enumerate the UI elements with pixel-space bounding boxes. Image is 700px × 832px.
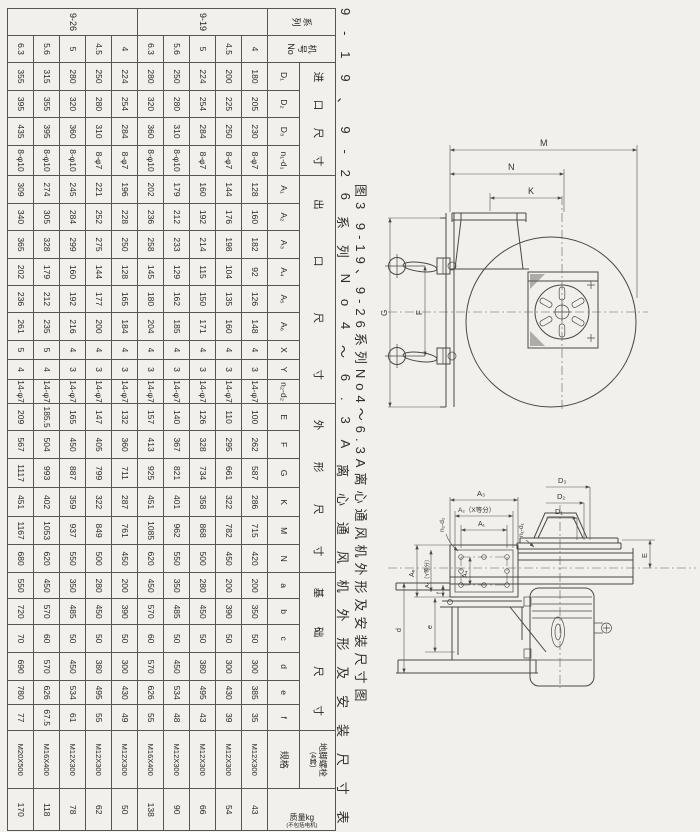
dim-label-d: d <box>396 628 403 632</box>
header-anchor-bolt: 地脚螺栓(4套) <box>300 731 336 789</box>
data-cell: 202 <box>8 259 34 286</box>
dim-label-N: N <box>508 162 515 172</box>
data-cell: 274 <box>34 176 60 204</box>
data-cell: 55 <box>138 705 164 731</box>
table-caption-char: 尺 <box>334 753 353 766</box>
data-cell: 275 <box>86 231 112 259</box>
data-cell: 148 <box>242 313 268 341</box>
header-col: A₅ <box>268 286 300 313</box>
data-cell: 3 <box>138 360 164 380</box>
data-cell: 49 <box>112 705 138 731</box>
model-no-cell: 4.5 <box>216 36 242 63</box>
data-cell: 570 <box>34 653 60 681</box>
data-cell: 162 <box>164 286 190 313</box>
data-cell: 413 <box>138 431 164 459</box>
data-cell: 177 <box>86 286 112 313</box>
table-caption-char: ～ <box>334 345 353 358</box>
figure-caption: 图3 9-19、9-26系列No4～6.3A离心通风机外形及安装尺寸图 <box>352 184 371 706</box>
data-cell: 295 <box>216 431 242 459</box>
data-cell: 236 <box>138 204 164 231</box>
data-cell: 4 <box>138 341 164 360</box>
data-cell: 212 <box>34 286 60 313</box>
header-col: c <box>268 625 300 653</box>
data-cell: 50 <box>86 625 112 653</box>
data-cell: 126 <box>190 404 216 431</box>
spec-table: 系列机号No进口尺寸出口尺寸外形尺寸基础尺寸地脚螺栓(4套)质量kg(不包括电机… <box>7 8 336 831</box>
dim-label-D1: D₁ <box>555 507 563 516</box>
data-cell: 868 <box>190 517 216 545</box>
table-row: 6.32803203608-φ102022362581451802044314-… <box>138 9 164 831</box>
data-cell: 77 <box>8 705 34 731</box>
motor <box>524 588 612 686</box>
table-caption-char: 9 <box>334 126 353 133</box>
data-cell: 150 <box>190 286 216 313</box>
data-cell: M12X300 <box>164 731 190 789</box>
table-caption-char: . <box>334 397 353 401</box>
data-cell: 180 <box>138 286 164 313</box>
data-cell: 1085 <box>138 517 164 545</box>
data-cell: 14-φ7 <box>86 380 112 404</box>
data-cell: 165 <box>112 286 138 313</box>
data-cell: 450 <box>138 573 164 599</box>
table-caption-char: A <box>334 440 353 449</box>
data-cell: M16X400 <box>138 731 164 789</box>
data-cell: 799 <box>86 459 112 488</box>
header-col: A₁ <box>268 176 300 204</box>
data-cell: 118 <box>34 789 60 831</box>
data-cell: 390 <box>112 599 138 625</box>
table-caption-char: 表 <box>334 811 353 824</box>
data-cell: 587 <box>242 459 268 488</box>
data-cell: 360 <box>138 118 164 146</box>
table-caption-char: 6 <box>334 193 353 200</box>
header-col: Y <box>268 360 300 380</box>
data-cell: 160 <box>60 259 86 286</box>
data-cell: 322 <box>216 488 242 517</box>
data-cell: 450 <box>34 573 60 599</box>
data-cell: 993 <box>34 459 60 488</box>
data-cell: 3 <box>60 360 86 380</box>
data-cell: 3 <box>242 360 268 380</box>
data-cell: M12X300 <box>190 731 216 789</box>
data-cell: 5 <box>8 341 34 360</box>
dim-label-K: K <box>528 186 534 196</box>
data-cell: 534 <box>164 681 190 705</box>
data-cell: 430 <box>216 681 242 705</box>
data-cell: 66 <box>190 789 216 831</box>
table-caption-char: N <box>334 274 353 283</box>
table-caption-char: 及 <box>334 666 353 679</box>
table-row: 9-1941802052308-φ7128160182921261484314-… <box>242 9 268 831</box>
data-cell: 310 <box>164 118 190 146</box>
header-col: n₁-d₁ <box>268 146 300 176</box>
data-cell: 4 <box>216 341 242 360</box>
header-group-2: 外形尺寸 <box>300 404 336 573</box>
data-cell: 300 <box>112 653 138 681</box>
header-col: G <box>268 459 300 488</box>
model-no-cell: 5.6 <box>164 36 190 63</box>
data-cell: 8-φ10 <box>34 146 60 176</box>
data-cell: 567 <box>8 431 34 459</box>
data-cell: 135 <box>216 286 242 313</box>
dim-label-f: f <box>436 592 443 594</box>
header-col: n₂-d₂ <box>268 380 300 404</box>
data-cell: 8-φ7 <box>216 146 242 176</box>
data-cell: 451 <box>8 488 34 517</box>
data-cell: 250 <box>86 63 112 91</box>
data-cell: 216 <box>60 313 86 341</box>
header-col: d <box>268 653 300 681</box>
data-cell: 821 <box>164 459 190 488</box>
header-col: b <box>268 599 300 625</box>
data-cell: 1117 <box>8 459 34 488</box>
data-cell: 280 <box>86 573 112 599</box>
header-col: M <box>268 517 300 545</box>
data-cell: 184 <box>112 313 138 341</box>
data-cell: 182 <box>242 231 268 259</box>
data-cell: 430 <box>112 681 138 705</box>
data-cell: 8-φ10 <box>138 146 164 176</box>
data-cell: 54 <box>216 789 242 831</box>
model-no-cell: 6.3 <box>138 36 164 63</box>
table-caption: 9-19、9-26系列No4～6.3A离心通风机外形及安装尺寸表 <box>334 8 353 824</box>
table-caption-char: 9 <box>334 8 353 15</box>
header-col: A₃ <box>268 231 300 259</box>
table-caption-char: 通 <box>334 522 353 535</box>
data-cell: 380 <box>86 653 112 681</box>
inlet-bell <box>517 513 621 553</box>
data-cell: 4 <box>190 341 216 360</box>
data-cell: 104 <box>216 259 242 286</box>
data-cell: 3 <box>190 360 216 380</box>
data-cell: 680 <box>8 545 34 573</box>
data-cell: 70 <box>8 625 34 653</box>
data-cell: 236 <box>8 286 34 313</box>
table-row: 4.52502803108-φ72212522751441772004314-φ… <box>86 9 112 831</box>
table-caption-char: 2 <box>334 170 353 177</box>
data-cell: 160 <box>242 204 268 231</box>
data-cell: 147 <box>86 404 112 431</box>
table-caption-char: 9 <box>334 74 353 81</box>
data-cell: 132 <box>112 404 138 431</box>
data-cell: 245 <box>60 176 86 204</box>
data-cell: 962 <box>164 517 190 545</box>
data-cell: 450 <box>216 545 242 573</box>
data-cell: 309 <box>8 176 34 204</box>
data-cell: 192 <box>60 286 86 313</box>
data-cell: M12X300 <box>60 731 86 789</box>
table-caption-char: 、 <box>334 97 353 110</box>
data-cell: 4 <box>34 360 60 380</box>
dim-label-G: G <box>380 310 389 316</box>
data-cell: 233 <box>164 231 190 259</box>
data-cell: 212 <box>164 204 190 231</box>
data-cell: 395 <box>8 91 34 118</box>
data-cell: 4 <box>164 341 190 360</box>
table-caption-char: 外 <box>334 608 353 621</box>
data-cell: 62 <box>86 789 112 831</box>
data-cell: 8-φ7 <box>112 146 138 176</box>
data-cell: 359 <box>60 488 86 517</box>
data-cell: 4 <box>60 341 86 360</box>
data-cell: 214 <box>190 231 216 259</box>
header-col: X <box>268 341 300 360</box>
model-no-cell: 4 <box>112 36 138 63</box>
data-cell: 299 <box>60 231 86 259</box>
data-cell: 67.5 <box>34 705 60 731</box>
table-caption-char: - <box>334 31 353 35</box>
data-cell: 570 <box>34 599 60 625</box>
data-cell: 230 <box>242 118 268 146</box>
data-cell: 202 <box>138 176 164 204</box>
data-cell: 78 <box>60 789 86 831</box>
dim-label-M: M <box>540 138 548 148</box>
table-caption-char: 心 <box>334 493 353 506</box>
data-cell: M12X300 <box>216 731 242 789</box>
data-cell: 8-φ10 <box>8 146 34 176</box>
data-cell: 258 <box>138 231 164 259</box>
data-cell: 350 <box>164 573 190 599</box>
data-cell: 401 <box>164 488 190 517</box>
dim-label-A3: A₃ <box>477 489 485 498</box>
data-cell: 390 <box>216 599 242 625</box>
fan-front-view-drawing: M N K G F <box>378 105 700 420</box>
data-cell: 3 <box>86 360 112 380</box>
fan-side-view-drawing: A₃ A₂（X等分） A₁ n₂-d₂ A₆ A₅（Y等分） A₄ f <box>378 435 700 693</box>
data-cell: 4 <box>8 360 34 380</box>
data-cell: 451 <box>138 488 164 517</box>
table-caption-char: 装 <box>334 724 353 737</box>
data-cell: 280 <box>164 91 190 118</box>
data-cell: 14-φ7 <box>190 380 216 404</box>
data-cell: 43 <box>242 789 268 831</box>
data-cell: 500 <box>190 545 216 573</box>
data-cell: 780 <box>8 681 34 705</box>
data-cell: 420 <box>242 545 268 573</box>
header-col: D₁ <box>268 63 300 91</box>
header-group-1: 出口尺寸 <box>300 176 336 404</box>
data-cell: 320 <box>138 91 164 118</box>
data-cell: 14-φ7 <box>164 380 190 404</box>
data-cell: 200 <box>112 573 138 599</box>
table-row: 52242542848-φ71601922141151501714314-φ71… <box>190 9 216 831</box>
data-cell: 937 <box>60 517 86 545</box>
table-caption-char: - <box>334 149 353 153</box>
header-col: a <box>268 573 300 599</box>
data-cell: 221 <box>86 176 112 204</box>
data-cell: 402 <box>34 488 60 517</box>
data-cell: 205 <box>242 91 268 118</box>
data-cell: 48 <box>164 705 190 731</box>
table-caption-char: 系 <box>334 216 353 229</box>
header-series: 系列 <box>268 9 336 36</box>
header-col: A₆ <box>268 313 300 341</box>
series-cell: 9-19 <box>138 9 268 36</box>
data-cell: 350 <box>60 573 86 599</box>
header-col: N <box>268 545 300 573</box>
data-cell: 140 <box>164 404 190 431</box>
data-cell: 4 <box>86 341 112 360</box>
data-cell: 50 <box>242 625 268 653</box>
data-cell: 200 <box>86 313 112 341</box>
header-model-no: 机号No <box>268 36 336 63</box>
data-cell: 128 <box>242 176 268 204</box>
data-cell: 925 <box>138 459 164 488</box>
data-cell: 715 <box>242 517 268 545</box>
table-caption-char: 3 <box>334 416 353 423</box>
model-no-cell: 6.3 <box>8 36 34 63</box>
data-cell: 198 <box>216 231 242 259</box>
data-cell: 185.5 <box>34 404 60 431</box>
data-cell: 129 <box>164 259 190 286</box>
data-cell: 138 <box>138 789 164 831</box>
data-cell: 60 <box>138 625 164 653</box>
header-col: K <box>268 488 300 517</box>
data-cell: M12X300 <box>112 731 138 789</box>
model-no-cell: 5.6 <box>34 36 60 63</box>
data-cell: 360 <box>60 118 86 146</box>
header-group-3: 基础尺寸 <box>300 573 336 731</box>
data-cell: 204 <box>138 313 164 341</box>
data-cell: 495 <box>190 681 216 705</box>
dim-label-n2d2: n₂-d₂ <box>439 517 446 532</box>
data-cell: 504 <box>34 431 60 459</box>
series-cell: 9-26 <box>8 9 138 36</box>
data-cell: 450 <box>164 653 190 681</box>
table-row: 4.52002252508-φ71441761981041351604314-φ… <box>216 9 242 831</box>
data-cell: 179 <box>164 176 190 204</box>
data-cell: 200 <box>242 573 268 599</box>
data-cell: 90 <box>164 789 190 831</box>
data-cell: 92 <box>242 259 268 286</box>
data-cell: 350 <box>242 599 268 625</box>
table-caption-char: 安 <box>334 695 353 708</box>
data-cell: 250 <box>112 231 138 259</box>
header-col: F <box>268 431 300 459</box>
data-cell: 300 <box>216 653 242 681</box>
data-cell: 14-φ7 <box>138 380 164 404</box>
data-cell: 782 <box>216 517 242 545</box>
data-cell: 485 <box>60 599 86 625</box>
data-cell: 185 <box>164 313 190 341</box>
header-col: f <box>268 705 300 731</box>
table-caption-char: 1 <box>334 51 353 58</box>
data-cell: 200 <box>216 573 242 599</box>
data-cell: 261 <box>8 313 34 341</box>
data-cell: 310 <box>86 118 112 146</box>
data-cell: 196 <box>112 176 138 204</box>
data-cell: 280 <box>138 63 164 91</box>
data-cell: 328 <box>190 431 216 459</box>
data-cell: 115 <box>190 259 216 286</box>
data-cell: 570 <box>138 599 164 625</box>
dim-label-D3: D₃ <box>558 476 566 485</box>
data-cell: 225 <box>216 91 242 118</box>
data-cell: M16X400 <box>34 731 60 789</box>
data-cell: 14-φ7 <box>60 380 86 404</box>
dim-label-e: e <box>427 625 434 629</box>
data-cell: 224 <box>112 63 138 91</box>
data-cell: 252 <box>86 204 112 231</box>
table-caption-char: 列 <box>334 245 353 258</box>
data-cell: 690 <box>8 653 34 681</box>
data-cell: 284 <box>112 118 138 146</box>
table-caption-char: 风 <box>334 551 353 564</box>
data-cell: 1167 <box>8 517 34 545</box>
header-col: A₂ <box>268 204 300 231</box>
data-cell: 50 <box>60 625 86 653</box>
model-no-cell: 4 <box>242 36 268 63</box>
data-cell: 620 <box>34 545 60 573</box>
damper-bracket-bottom <box>385 344 456 368</box>
data-cell: 315 <box>34 63 60 91</box>
data-cell: 3 <box>216 360 242 380</box>
dim-label-A6: A₆ <box>409 569 416 577</box>
data-cell: 176 <box>216 204 242 231</box>
data-cell: 280 <box>190 573 216 599</box>
data-cell: 550 <box>8 573 34 599</box>
dim-label-n1d1: n₁-d₁ <box>518 522 525 537</box>
data-cell: 14-φ7 <box>216 380 242 404</box>
data-cell: 450 <box>60 653 86 681</box>
data-cell: 160 <box>190 176 216 204</box>
header-col: D₂ <box>268 91 300 118</box>
data-cell: 157 <box>138 404 164 431</box>
table-caption-char: 离 <box>334 464 353 477</box>
header-bolt-spec: 规格 <box>268 731 300 789</box>
data-cell: 50 <box>216 625 242 653</box>
data-cell: 1053 <box>34 517 60 545</box>
data-cell: 4 <box>112 341 138 360</box>
data-cell: 254 <box>190 91 216 118</box>
data-cell: 287 <box>112 488 138 517</box>
header-col: E <box>268 404 300 431</box>
data-cell: 192 <box>190 204 216 231</box>
dim-label-F: F <box>415 310 424 315</box>
data-cell: 661 <box>216 459 242 488</box>
data-cell: 254 <box>112 91 138 118</box>
data-cell: 450 <box>86 599 112 625</box>
data-cell: 380 <box>190 653 216 681</box>
data-cell: 144 <box>86 259 112 286</box>
data-cell: 209 <box>8 404 34 431</box>
data-cell: 626 <box>138 681 164 705</box>
data-cell: 300 <box>242 653 268 681</box>
data-cell: 500 <box>86 545 112 573</box>
data-cell: 50 <box>112 625 138 653</box>
data-cell: 284 <box>190 118 216 146</box>
data-cell: 14-φ7 <box>8 380 34 404</box>
data-cell: 8-φ7 <box>242 146 268 176</box>
data-cell: M12X300 <box>242 731 268 789</box>
data-cell: 228 <box>112 204 138 231</box>
data-cell: 550 <box>164 545 190 573</box>
data-cell: 322 <box>86 488 112 517</box>
data-cell: 50 <box>164 625 190 653</box>
table-row: 9-2642242542848-φ71962282501281651844314… <box>112 9 138 831</box>
data-cell: 305 <box>34 204 60 231</box>
data-cell: 5 <box>34 341 60 360</box>
header-col: A₄ <box>268 259 300 286</box>
data-cell: 250 <box>164 63 190 91</box>
data-cell: 284 <box>60 204 86 231</box>
header-group-0: 进口尺寸 <box>300 63 336 176</box>
data-cell: 358 <box>190 488 216 517</box>
data-cell: 180 <box>242 63 268 91</box>
table-caption-char: 6 <box>334 374 353 381</box>
data-cell: 160 <box>216 313 242 341</box>
data-cell: 35 <box>242 705 268 731</box>
